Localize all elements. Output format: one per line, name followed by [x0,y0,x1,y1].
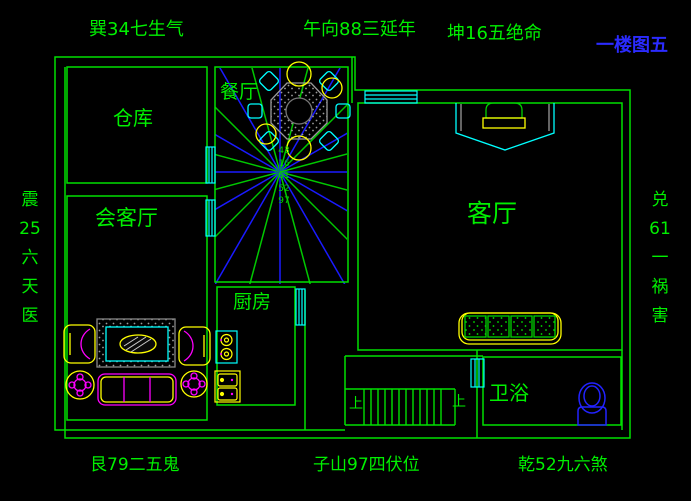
floorplan-drawing [0,0,691,501]
drawing-title: 一楼图五 [596,36,668,57]
compass-label-southwest: 坤16五绝命 [447,24,542,45]
window-kitchen [296,289,305,325]
armchair-left [64,325,95,363]
windows [206,91,484,387]
compass-center-numbers: 43 16 61 52 97 [271,145,297,208]
window-living-top [365,91,417,103]
compass-label-east: 震 25 六 天 医 [12,186,48,331]
armchair-right [179,327,210,365]
room-label-storage: 仓库 [113,107,153,130]
tv-alcove [456,103,554,150]
compass-label-northeast: 艮79二五鬼 [90,456,180,476]
compass-label-south: 午向88三延年 [303,20,416,41]
toilet [578,383,606,425]
room-label-dining: 餐厅 [220,82,258,104]
sofa-reception [98,374,176,405]
coffee-table [120,335,156,353]
compass-label-west: 兑 61 一 祸 害 [642,186,678,331]
stairs-up-label-right: 上 [452,394,466,410]
room-label-reception: 会客厅 [95,206,158,230]
room-label-kitchen: 厨房 [233,292,271,314]
side-table-right [181,371,207,397]
sofa-living [459,313,561,344]
room-label-bathroom: 卫浴 [489,382,529,405]
floorplan-canvas[interactable]: 巽34七生气 午向88三延年 坤16五绝命 一楼图五 震 25 六 天 医 兑 … [0,0,691,501]
kitchen-fixtures [215,331,240,402]
sink [215,371,240,402]
compass-label-southeast: 巽34七生气 [89,20,184,41]
reception-furniture [64,319,210,405]
compass-label-northwest: 乾52九六煞 [518,456,608,476]
compass-label-north: 子山97四伏位 [313,456,420,476]
tv [483,103,525,128]
room-label-living: 客厅 [467,200,517,229]
stairs-up-label-left: 上 [349,396,363,412]
cooktop [216,331,237,363]
side-table-left [66,371,94,399]
